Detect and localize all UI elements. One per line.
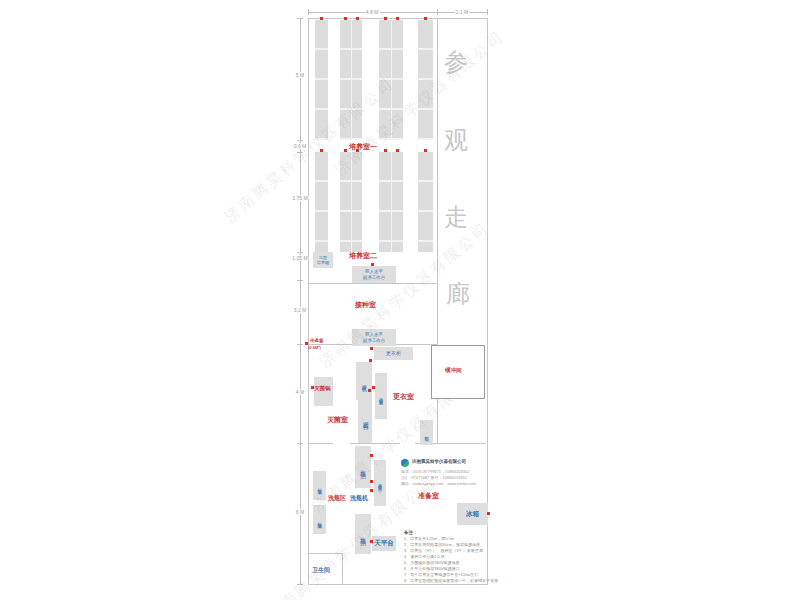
stainless-worktable-label: 不锈钢工作台: [378, 480, 383, 486]
buffer-room: 缓冲间: [431, 345, 485, 399]
wall-changing-prep-a: [308, 443, 333, 444]
shoe-rack-label: 鞋架: [424, 432, 430, 434]
notes-title: 备注：: [404, 529, 489, 536]
dim-tick: [297, 344, 303, 345]
dim-label-6m: 6 M: [295, 509, 305, 515]
dim-label-21m: 2.1 M: [455, 9, 470, 15]
dim-tick: [308, 9, 309, 15]
filling-table: 灌装台: [358, 393, 372, 443]
pass-window-label: 传递窗: [310, 338, 324, 343]
light-incubator: 光照 培养箱: [313, 252, 333, 268]
drying-rack-label: 晾瓶架: [317, 518, 323, 521]
fridge: 冰箱: [457, 503, 488, 525]
culture-rack: [315, 20, 328, 140]
outlet-dot: [370, 347, 373, 350]
filling-machine-label: 灌装机: [361, 380, 367, 383]
dim-tick: [297, 252, 303, 253]
culture-rack: [379, 152, 403, 252]
dim-label-48m: 4.8 M: [365, 9, 380, 15]
dim-label-06m: 0.6 M: [293, 143, 308, 149]
company-name: 济南腾昊科学仪器有限公司: [412, 459, 466, 464]
outlet-dot: [305, 342, 308, 345]
dim-label-4m: 4 M: [295, 389, 305, 395]
bottle-washer-label: 洗瓶机: [350, 494, 368, 503]
note-item: 8、培养室照明灯预留插座每排一个，灯管随架子安装: [404, 578, 489, 584]
dim-label-105m: 1.05 M: [291, 255, 308, 261]
clean-bench-label-2: 超净工作台: [363, 275, 386, 281]
dim-tick: [437, 9, 438, 15]
outlet-dot: [370, 480, 373, 483]
room-label-culture2: 培养室二: [349, 251, 377, 261]
light-incubator-label-2: 培养箱: [317, 260, 329, 265]
dim-tick: [297, 443, 303, 444]
drying-rack-label: 晾瓶架: [317, 484, 323, 487]
culture-rack: [418, 152, 433, 252]
outlet-dot: [384, 17, 387, 20]
balance-table-label: 天平台: [374, 539, 394, 547]
clean-bench-1: 双人水平 超净工作台: [352, 266, 396, 283]
fridge-label: 冰箱: [466, 510, 479, 518]
outlet-dot: [356, 17, 359, 20]
outlet-dot: [370, 489, 373, 492]
dim-line-left: [300, 18, 301, 585]
outlet-dot: [372, 386, 375, 389]
dim-tick: [297, 140, 303, 141]
sterilizer-label: 灭菌锅: [314, 385, 331, 392]
floor-plan-canvas: 济南腾昊科学仪器有限公司 济南腾昊科学仪器有限公司 济南腾昊科学仪器有限公司 济…: [0, 0, 800, 600]
outlet-dot: [371, 263, 374, 266]
corridor-char-4: 廊: [446, 278, 470, 310]
filling-table-label: 灌装台: [361, 417, 369, 420]
pass-window-size: (0.6M²): [308, 345, 321, 350]
corridor-char-2: 观: [444, 124, 468, 156]
room-label-changing: 更衣室: [393, 392, 414, 402]
dim-tick: [297, 280, 303, 281]
company-logo: [401, 459, 409, 467]
dim-label-5m: 5 M: [295, 72, 305, 78]
wardrobe: 更衣柜: [374, 347, 413, 360]
outlet-dot: [396, 17, 399, 20]
outlet-dot: [368, 389, 371, 392]
notes-block: 备注： 1、培养架长1.25m，宽0.5m 2、培养架层间距离按30cm，预留电…: [404, 529, 489, 584]
wardrobe-label: 更衣柜: [386, 350, 401, 356]
corridor-char-3: 走: [444, 201, 468, 233]
outlet-dot: [424, 17, 427, 20]
outlet-dot: [424, 149, 427, 152]
outlet-dot: [487, 512, 490, 515]
room-label-sterilization: 灭菌室: [327, 415, 348, 425]
outlet-dot: [369, 359, 372, 362]
outlet-dot: [344, 17, 347, 20]
outlet-dot: [384, 149, 387, 152]
stainless-bench-label: 不锈钢长凳: [379, 394, 384, 399]
stainless-bench: 不锈钢长凳: [375, 373, 387, 419]
dim-tick: [297, 18, 303, 19]
dim-tick: [487, 9, 488, 15]
dim-label-32m: 3.2 M: [293, 307, 308, 313]
outlet-dot: [320, 17, 323, 20]
dim-label-375m: 3.75 M: [291, 195, 308, 201]
room-label-buffer: 缓冲间: [445, 367, 462, 374]
culture-rack: [315, 152, 328, 252]
outlet-dot: [311, 386, 314, 389]
outlet-dot: [396, 149, 399, 152]
